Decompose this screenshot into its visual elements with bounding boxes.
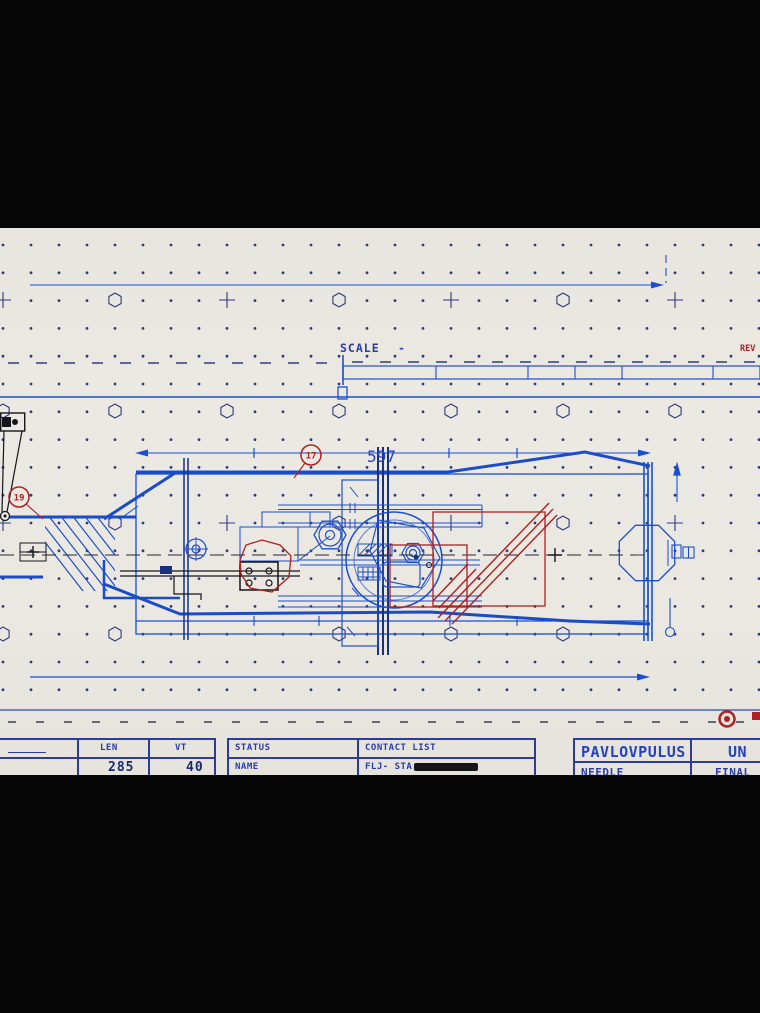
vt-header: VT bbox=[175, 743, 187, 753]
grid-dot bbox=[702, 633, 705, 636]
grid-dot bbox=[170, 577, 173, 580]
grid-dot bbox=[30, 327, 33, 330]
grid-dot bbox=[142, 410, 145, 413]
grid-dot bbox=[114, 494, 117, 497]
grid-dot bbox=[198, 299, 201, 302]
table-line bbox=[690, 738, 692, 775]
grid-dot bbox=[254, 466, 257, 469]
tail-cap bbox=[619, 464, 694, 637]
grid-dot bbox=[338, 688, 341, 691]
scanned-blueprint-page: SCALE - REV bbox=[0, 0, 760, 1013]
grid-dot bbox=[730, 522, 733, 525]
grid-dot bbox=[394, 438, 397, 441]
grid-dot bbox=[114, 688, 117, 691]
grid-dot bbox=[562, 355, 565, 358]
grid-dot bbox=[170, 244, 173, 247]
grid-dot bbox=[310, 383, 313, 386]
grid-dot bbox=[618, 661, 621, 664]
grid-dot bbox=[618, 605, 621, 608]
grid-dot bbox=[506, 438, 509, 441]
grid-dot bbox=[422, 327, 425, 330]
grid-dot bbox=[646, 244, 649, 247]
grid-dot bbox=[58, 494, 61, 497]
grid-dot bbox=[478, 383, 481, 386]
grid-dot bbox=[534, 355, 537, 358]
grid-dot bbox=[562, 327, 565, 330]
grid-dot bbox=[534, 327, 537, 330]
grid-dot bbox=[422, 271, 425, 274]
grid-cross-marker bbox=[219, 292, 235, 308]
grid-dot bbox=[506, 271, 509, 274]
grid-dot bbox=[394, 355, 397, 358]
grid-dot bbox=[30, 633, 33, 636]
grid-dot bbox=[534, 549, 537, 552]
scale-bar bbox=[343, 355, 760, 385]
grid-dot bbox=[366, 466, 369, 469]
grid-dot bbox=[590, 661, 593, 664]
grid-hexagon-marker bbox=[333, 404, 345, 418]
table-dash bbox=[8, 752, 46, 753]
grid-dot bbox=[702, 688, 705, 691]
grid-dot bbox=[674, 271, 677, 274]
grid-dot bbox=[618, 244, 621, 247]
grid-dot bbox=[30, 438, 33, 441]
grid-dot bbox=[310, 271, 313, 274]
grid-dot bbox=[366, 494, 369, 497]
grid-dot bbox=[226, 438, 229, 441]
grid-dot bbox=[506, 661, 509, 664]
grid-dot bbox=[282, 355, 285, 358]
table-line bbox=[573, 738, 760, 740]
grid-dot bbox=[254, 549, 257, 552]
grid-dot bbox=[254, 605, 257, 608]
grid-dot bbox=[310, 327, 313, 330]
dim-arrow-left bbox=[135, 450, 148, 457]
grid-dot bbox=[310, 688, 313, 691]
grid-dot bbox=[338, 244, 341, 247]
table-line bbox=[573, 761, 760, 763]
grid-dot bbox=[226, 577, 229, 580]
grid-dot bbox=[534, 383, 537, 386]
grid-dot bbox=[590, 494, 593, 497]
grid-hexagon-marker bbox=[109, 293, 121, 307]
grid-cross-marker bbox=[667, 515, 683, 531]
grid-dot bbox=[590, 244, 593, 247]
grid-dot bbox=[142, 688, 145, 691]
grid-dot bbox=[58, 438, 61, 441]
table-line bbox=[227, 738, 535, 740]
drawing-paper: SCALE - REV bbox=[0, 228, 760, 775]
grid-dot bbox=[478, 271, 481, 274]
grid-dot bbox=[590, 605, 593, 608]
grid-dot bbox=[394, 466, 397, 469]
grid-dot bbox=[394, 494, 397, 497]
grid-dot bbox=[730, 633, 733, 636]
grid-dot bbox=[506, 494, 509, 497]
grid-dot bbox=[422, 355, 425, 358]
grid-dot bbox=[534, 494, 537, 497]
grid-dot bbox=[282, 244, 285, 247]
grid-dot bbox=[534, 299, 537, 302]
drain-circle bbox=[666, 628, 675, 637]
grid-dot bbox=[142, 383, 145, 386]
grid-dot bbox=[366, 244, 369, 247]
grid-dot bbox=[58, 688, 61, 691]
grid-dot bbox=[534, 244, 537, 247]
table-line bbox=[214, 738, 216, 775]
rev-label: REV bbox=[740, 344, 755, 354]
table-line bbox=[148, 738, 150, 775]
grid-dot bbox=[702, 466, 705, 469]
grid-dot bbox=[366, 355, 369, 358]
grid-dot bbox=[394, 271, 397, 274]
grid-dot bbox=[646, 327, 649, 330]
len-header: LEN bbox=[100, 743, 118, 753]
grid-dot bbox=[422, 438, 425, 441]
push-rod bbox=[120, 571, 300, 576]
grid-dot bbox=[590, 577, 593, 580]
contact-list-header: CONTACT LIST bbox=[365, 743, 436, 753]
grid-dot bbox=[478, 410, 481, 413]
grid-dot bbox=[86, 271, 89, 274]
grid-dot bbox=[590, 549, 593, 552]
redacted-text-blob bbox=[414, 763, 478, 771]
grid-dot bbox=[562, 271, 565, 274]
grid-dot bbox=[310, 466, 313, 469]
grid-dot bbox=[422, 688, 425, 691]
grid-dot bbox=[366, 271, 369, 274]
grid-dot bbox=[198, 244, 201, 247]
grid-dot bbox=[58, 549, 61, 552]
grid-dot bbox=[142, 327, 145, 330]
grid-dot bbox=[702, 438, 705, 441]
grid-dot bbox=[506, 522, 509, 525]
grid-dot bbox=[58, 410, 61, 413]
grid-dot bbox=[2, 271, 5, 274]
grid-dot bbox=[86, 688, 89, 691]
contact-name: FLJ- STA bbox=[365, 762, 478, 772]
grid-dot bbox=[562, 466, 565, 469]
grid-dot bbox=[86, 383, 89, 386]
grid-dot bbox=[198, 383, 201, 386]
grid-dot bbox=[674, 688, 677, 691]
grid-dot bbox=[86, 605, 89, 608]
grid-dot bbox=[58, 299, 61, 302]
grid-dot bbox=[282, 661, 285, 664]
grid-dot bbox=[142, 299, 145, 302]
grid-dot bbox=[142, 549, 145, 552]
grid-dot bbox=[674, 494, 677, 497]
grid-dot bbox=[2, 549, 5, 552]
grid-dot bbox=[450, 466, 453, 469]
grid-dot bbox=[702, 355, 705, 358]
grid-dot bbox=[618, 271, 621, 274]
grid-dot bbox=[2, 244, 5, 247]
grid-dot bbox=[30, 688, 33, 691]
balloon-17-label: 17 bbox=[306, 452, 317, 462]
grid-dot bbox=[702, 661, 705, 664]
grid-dot bbox=[58, 466, 61, 469]
table-line bbox=[357, 738, 359, 775]
grid-dot bbox=[590, 271, 593, 274]
grid-dot bbox=[674, 577, 677, 580]
len-value: 285 bbox=[108, 760, 134, 775]
grid-dot bbox=[702, 577, 705, 580]
vt-value: 40 bbox=[186, 760, 204, 775]
grid-dot bbox=[562, 577, 565, 580]
blueprint-canvas: SCALE - REV bbox=[0, 228, 760, 775]
grid-hexagon-marker bbox=[333, 293, 345, 307]
grid-dot bbox=[2, 383, 5, 386]
grid-dot bbox=[450, 383, 453, 386]
grid-dot bbox=[170, 688, 173, 691]
grid-dot bbox=[730, 688, 733, 691]
grid-dot bbox=[170, 438, 173, 441]
grid-dot bbox=[310, 244, 313, 247]
grid-dot bbox=[114, 466, 117, 469]
grid-dot bbox=[506, 410, 509, 413]
grid-dot bbox=[562, 494, 565, 497]
grid-dot bbox=[114, 605, 117, 608]
grid-dot bbox=[674, 661, 677, 664]
grid-dot bbox=[282, 494, 285, 497]
grid-dot bbox=[114, 577, 117, 580]
grid-dot bbox=[730, 605, 733, 608]
grid-dot bbox=[338, 383, 341, 386]
grid-dot bbox=[86, 410, 89, 413]
grid-dot bbox=[646, 299, 649, 302]
grid-dot bbox=[254, 494, 257, 497]
grid-dot bbox=[618, 438, 621, 441]
balloon-19-label: 19 bbox=[14, 494, 25, 504]
scale-value: - bbox=[398, 341, 405, 355]
grid-dot bbox=[30, 605, 33, 608]
grid-dot bbox=[702, 383, 705, 386]
cam-profile bbox=[240, 540, 291, 592]
grid-cross-marker bbox=[219, 515, 235, 531]
black-linkage bbox=[0, 543, 648, 600]
grid-dot bbox=[618, 410, 621, 413]
red-panel-outer bbox=[433, 512, 545, 606]
grid-dot bbox=[170, 466, 173, 469]
grid-dot bbox=[730, 549, 733, 552]
grid-dot bbox=[86, 633, 89, 636]
grid-dot bbox=[282, 271, 285, 274]
grid-dot bbox=[646, 438, 649, 441]
grid-dot bbox=[58, 244, 61, 247]
grid-dot bbox=[534, 438, 537, 441]
grid-dot bbox=[226, 688, 229, 691]
grid-dot bbox=[30, 410, 33, 413]
grid-dot bbox=[170, 522, 173, 525]
grid-dot bbox=[618, 299, 621, 302]
grid-dot bbox=[450, 577, 453, 580]
grid-dot bbox=[506, 244, 509, 247]
grid-dot bbox=[478, 688, 481, 691]
reference-lines bbox=[0, 255, 760, 722]
grid-dot bbox=[254, 522, 257, 525]
grid-dot bbox=[338, 494, 341, 497]
grid-dot bbox=[254, 661, 257, 664]
grid-dot bbox=[478, 438, 481, 441]
grid-dot bbox=[86, 661, 89, 664]
grid-dot bbox=[674, 605, 677, 608]
grid-dot bbox=[198, 355, 201, 358]
grid-dot bbox=[506, 327, 509, 330]
grid-dot bbox=[282, 466, 285, 469]
grid-dot bbox=[58, 271, 61, 274]
grid-dot bbox=[58, 522, 61, 525]
grid-dot bbox=[478, 327, 481, 330]
grid-dot bbox=[394, 549, 397, 552]
grid-dot bbox=[2, 355, 5, 358]
grid-dot bbox=[590, 383, 593, 386]
grid-dot bbox=[226, 466, 229, 469]
grid-dot bbox=[590, 466, 593, 469]
grid-dot bbox=[674, 383, 677, 386]
grid-dot bbox=[478, 299, 481, 302]
dim-arrow-right bbox=[638, 450, 651, 457]
grid-dot bbox=[394, 577, 397, 580]
grid-dot bbox=[730, 299, 733, 302]
grid-dot bbox=[2, 688, 5, 691]
table-line bbox=[227, 738, 229, 775]
grid-dot bbox=[170, 327, 173, 330]
grid-dot bbox=[590, 410, 593, 413]
grid-dot bbox=[310, 661, 313, 664]
grid-dot bbox=[562, 605, 565, 608]
grid-dot bbox=[338, 355, 341, 358]
grid-dot bbox=[198, 410, 201, 413]
grid-dot bbox=[450, 661, 453, 664]
grid-dot bbox=[30, 522, 33, 525]
grid-dot bbox=[422, 383, 425, 386]
grid-dot bbox=[506, 355, 509, 358]
grid-dot bbox=[142, 522, 145, 525]
grid-dot bbox=[86, 522, 89, 525]
grid-dot bbox=[590, 438, 593, 441]
grid-dot bbox=[30, 271, 33, 274]
grid-dot bbox=[478, 577, 481, 580]
grid-dot bbox=[170, 271, 173, 274]
grid-dot bbox=[450, 271, 453, 274]
grid-dot bbox=[226, 549, 229, 552]
grid-dot bbox=[198, 605, 201, 608]
grid-dot bbox=[422, 661, 425, 664]
grid-dot bbox=[282, 383, 285, 386]
grid-dot bbox=[198, 438, 201, 441]
contact-name-text: FLJ- STA bbox=[365, 762, 412, 772]
grid-dot bbox=[646, 271, 649, 274]
grid-dot bbox=[674, 244, 677, 247]
grid-dot bbox=[534, 688, 537, 691]
grid-dot bbox=[422, 466, 425, 469]
grid-dot bbox=[114, 383, 117, 386]
grid-dot bbox=[394, 244, 397, 247]
grid-dot bbox=[366, 410, 369, 413]
grid-dot bbox=[702, 522, 705, 525]
grid-dot bbox=[534, 577, 537, 580]
grid-dot bbox=[226, 271, 229, 274]
grid-dot bbox=[394, 410, 397, 413]
grid-dot bbox=[338, 271, 341, 274]
grid-dot bbox=[450, 494, 453, 497]
grid-dot bbox=[618, 355, 621, 358]
grid-dot bbox=[730, 466, 733, 469]
grid-dot bbox=[646, 410, 649, 413]
table-line bbox=[0, 757, 215, 759]
grid-dot bbox=[338, 466, 341, 469]
grid-dot bbox=[142, 244, 145, 247]
grid-dot bbox=[338, 438, 341, 441]
grid-dot bbox=[170, 549, 173, 552]
grid-dot bbox=[730, 244, 733, 247]
grid-dot bbox=[254, 271, 257, 274]
grid-hexagon-marker bbox=[0, 627, 9, 641]
grid-dot bbox=[562, 688, 565, 691]
grid-dot bbox=[282, 327, 285, 330]
grid-dot bbox=[506, 577, 509, 580]
grid-dot bbox=[366, 661, 369, 664]
grid-dot bbox=[702, 549, 705, 552]
grid-dot bbox=[450, 355, 453, 358]
grid-dot bbox=[282, 577, 285, 580]
grid-dot bbox=[618, 688, 621, 691]
grid-dot bbox=[730, 577, 733, 580]
grid-dot bbox=[226, 494, 229, 497]
grid-dot bbox=[618, 577, 621, 580]
grid-dot bbox=[142, 271, 145, 274]
grid-dot bbox=[254, 438, 257, 441]
grid-dot bbox=[30, 661, 33, 664]
grid-dot bbox=[562, 383, 565, 386]
machine-outline-thick bbox=[0, 452, 650, 624]
grid-dot bbox=[114, 355, 117, 358]
arrowhead-up bbox=[674, 464, 680, 475]
grid-dot bbox=[590, 299, 593, 302]
grid-dot bbox=[730, 661, 733, 664]
grid-dot bbox=[2, 661, 5, 664]
grid-dot bbox=[310, 355, 313, 358]
grid-dot bbox=[198, 327, 201, 330]
grid-dot bbox=[226, 605, 229, 608]
grid-dot bbox=[226, 244, 229, 247]
grid-dot bbox=[394, 688, 397, 691]
grid-dot bbox=[58, 661, 61, 664]
grid-dot bbox=[534, 410, 537, 413]
grid-dot bbox=[282, 410, 285, 413]
grid-dot bbox=[58, 355, 61, 358]
grid-dot bbox=[226, 355, 229, 358]
grid-dot bbox=[338, 577, 341, 580]
table-line bbox=[0, 738, 215, 740]
grid-dot bbox=[198, 466, 201, 469]
grid-dot bbox=[646, 661, 649, 664]
grid-dot bbox=[478, 355, 481, 358]
grid-hexagon-marker bbox=[669, 404, 681, 418]
red-corner-mark bbox=[752, 712, 760, 720]
grid-dot bbox=[58, 577, 61, 580]
grid-dot bbox=[702, 494, 705, 497]
grid-dot bbox=[478, 494, 481, 497]
grid-dot bbox=[114, 438, 117, 441]
grid-dot bbox=[506, 383, 509, 386]
grid-dot bbox=[338, 661, 341, 664]
grid-dot bbox=[142, 466, 145, 469]
grid-dot bbox=[450, 549, 453, 552]
grid-cross-marker bbox=[667, 292, 683, 308]
grid-dot bbox=[394, 383, 397, 386]
